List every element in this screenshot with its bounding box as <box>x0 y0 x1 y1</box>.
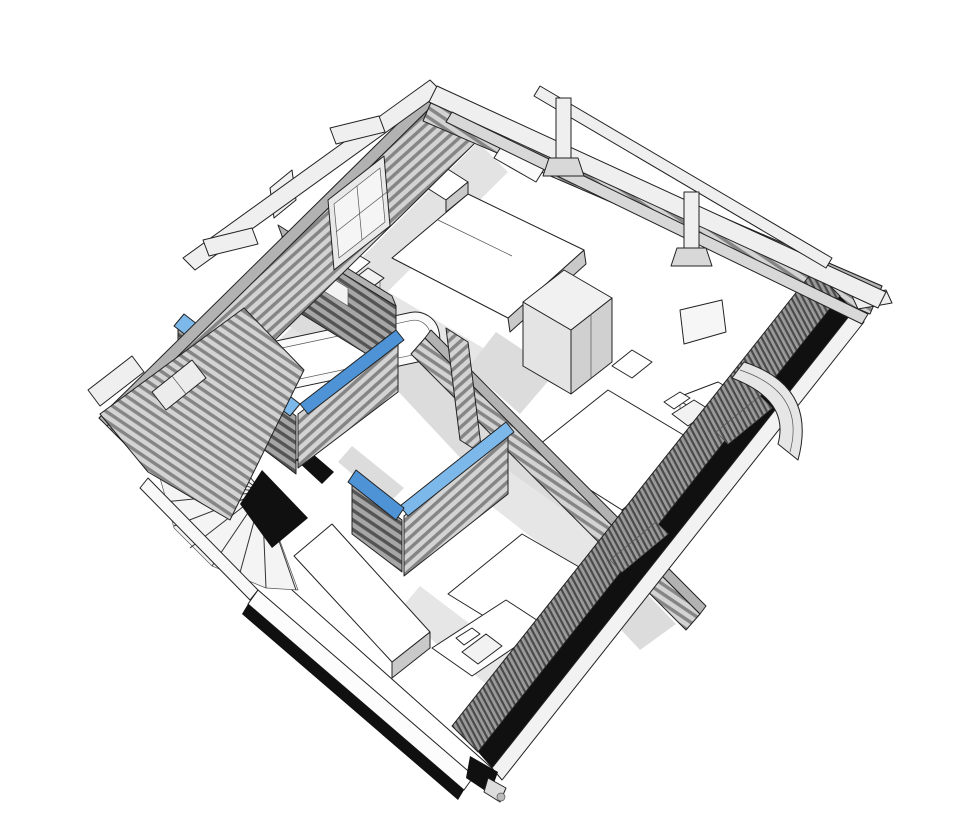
floorplan-3d-view <box>0 0 960 835</box>
viewport-3d[interactable] <box>0 0 960 835</box>
